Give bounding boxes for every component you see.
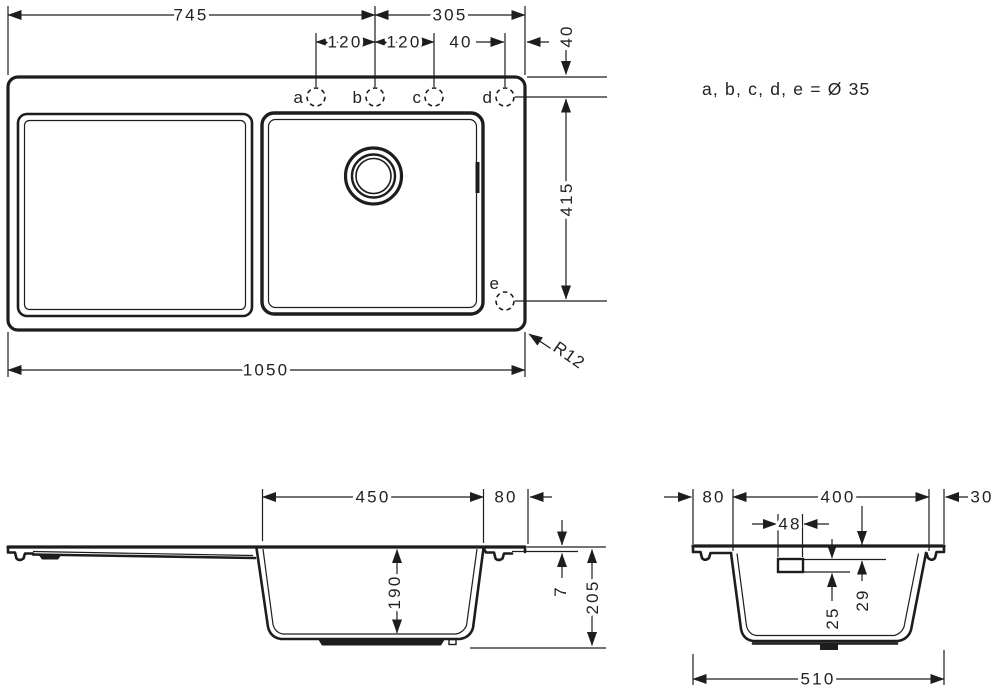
bowl-foot-strip <box>318 639 445 646</box>
overflow-opening <box>778 559 803 572</box>
tap-hole-d <box>496 88 514 106</box>
dim-label-48: 48 <box>778 515 801 534</box>
dim-label-120-bc: 120 <box>387 33 422 52</box>
overflow-slot-mark <box>476 162 480 193</box>
sink-dimension-drawing: a b c d e 745 305 120 120 40 40 415 1050… <box>0 0 1000 693</box>
tap-hole-b <box>366 88 384 106</box>
dim-label-1050: 1050 <box>243 361 290 380</box>
drainboard-inner-line <box>25 121 246 310</box>
bowl-profile-outer <box>257 548 484 639</box>
hole-label-e: e <box>490 274 499 293</box>
dim-label-7: 7 <box>551 585 570 597</box>
section-left-rim-hook <box>693 547 731 560</box>
section-extension-lines <box>693 489 944 685</box>
dim-label-80-section: 80 <box>702 488 725 507</box>
hole-label-b: b <box>353 88 362 107</box>
dim-label-30: 30 <box>970 488 993 507</box>
dim-label-205: 205 <box>583 580 602 615</box>
dim-label-415: 415 <box>557 182 576 217</box>
section-view: 80 400 30 48 29 25 510 <box>664 488 994 689</box>
hole-label-d: d <box>483 88 492 107</box>
tap-hole-e <box>496 292 514 310</box>
dim-label-40-vertical: 40 <box>557 24 576 47</box>
tap-hole-a <box>307 88 325 106</box>
dim-label-29: 29 <box>853 588 872 611</box>
dim-label-450: 450 <box>356 488 391 507</box>
dim-label-305: 305 <box>433 6 468 25</box>
dim-label-120-ab: 120 <box>328 33 363 52</box>
technical-drawing-page: a b c d e 745 305 120 120 40 40 415 1050… <box>0 0 1000 693</box>
dim-label-80-side: 80 <box>494 488 517 507</box>
side-extension-lines <box>263 489 607 648</box>
right-rim-hook <box>484 548 513 560</box>
dim-label-25: 25 <box>823 606 842 629</box>
hole-label-a: a <box>294 88 304 107</box>
tap-hole-c <box>425 88 443 106</box>
dim-label-745: 745 <box>174 6 209 25</box>
dim-label-190: 190 <box>385 575 404 610</box>
radius-label-r12: R12 <box>550 338 589 373</box>
bowl-profile-inner <box>263 549 477 634</box>
dim-label-510: 510 <box>801 670 836 689</box>
main-bowl <box>262 113 483 314</box>
hole-diameter-note: a, b, c, d, e = Ø 35 <box>702 79 870 99</box>
left-rim-hook <box>8 548 33 560</box>
hole-label-c: c <box>413 88 422 107</box>
drainboard <box>18 114 252 316</box>
top-view: a b c d e 745 305 120 120 40 40 415 1050… <box>8 6 870 380</box>
dim-label-40-horizontal: 40 <box>449 33 472 52</box>
side-view: 450 80 190 7 205 <box>8 488 606 649</box>
section-bottom-tab <box>820 643 838 650</box>
dim-label-400: 400 <box>821 488 856 507</box>
